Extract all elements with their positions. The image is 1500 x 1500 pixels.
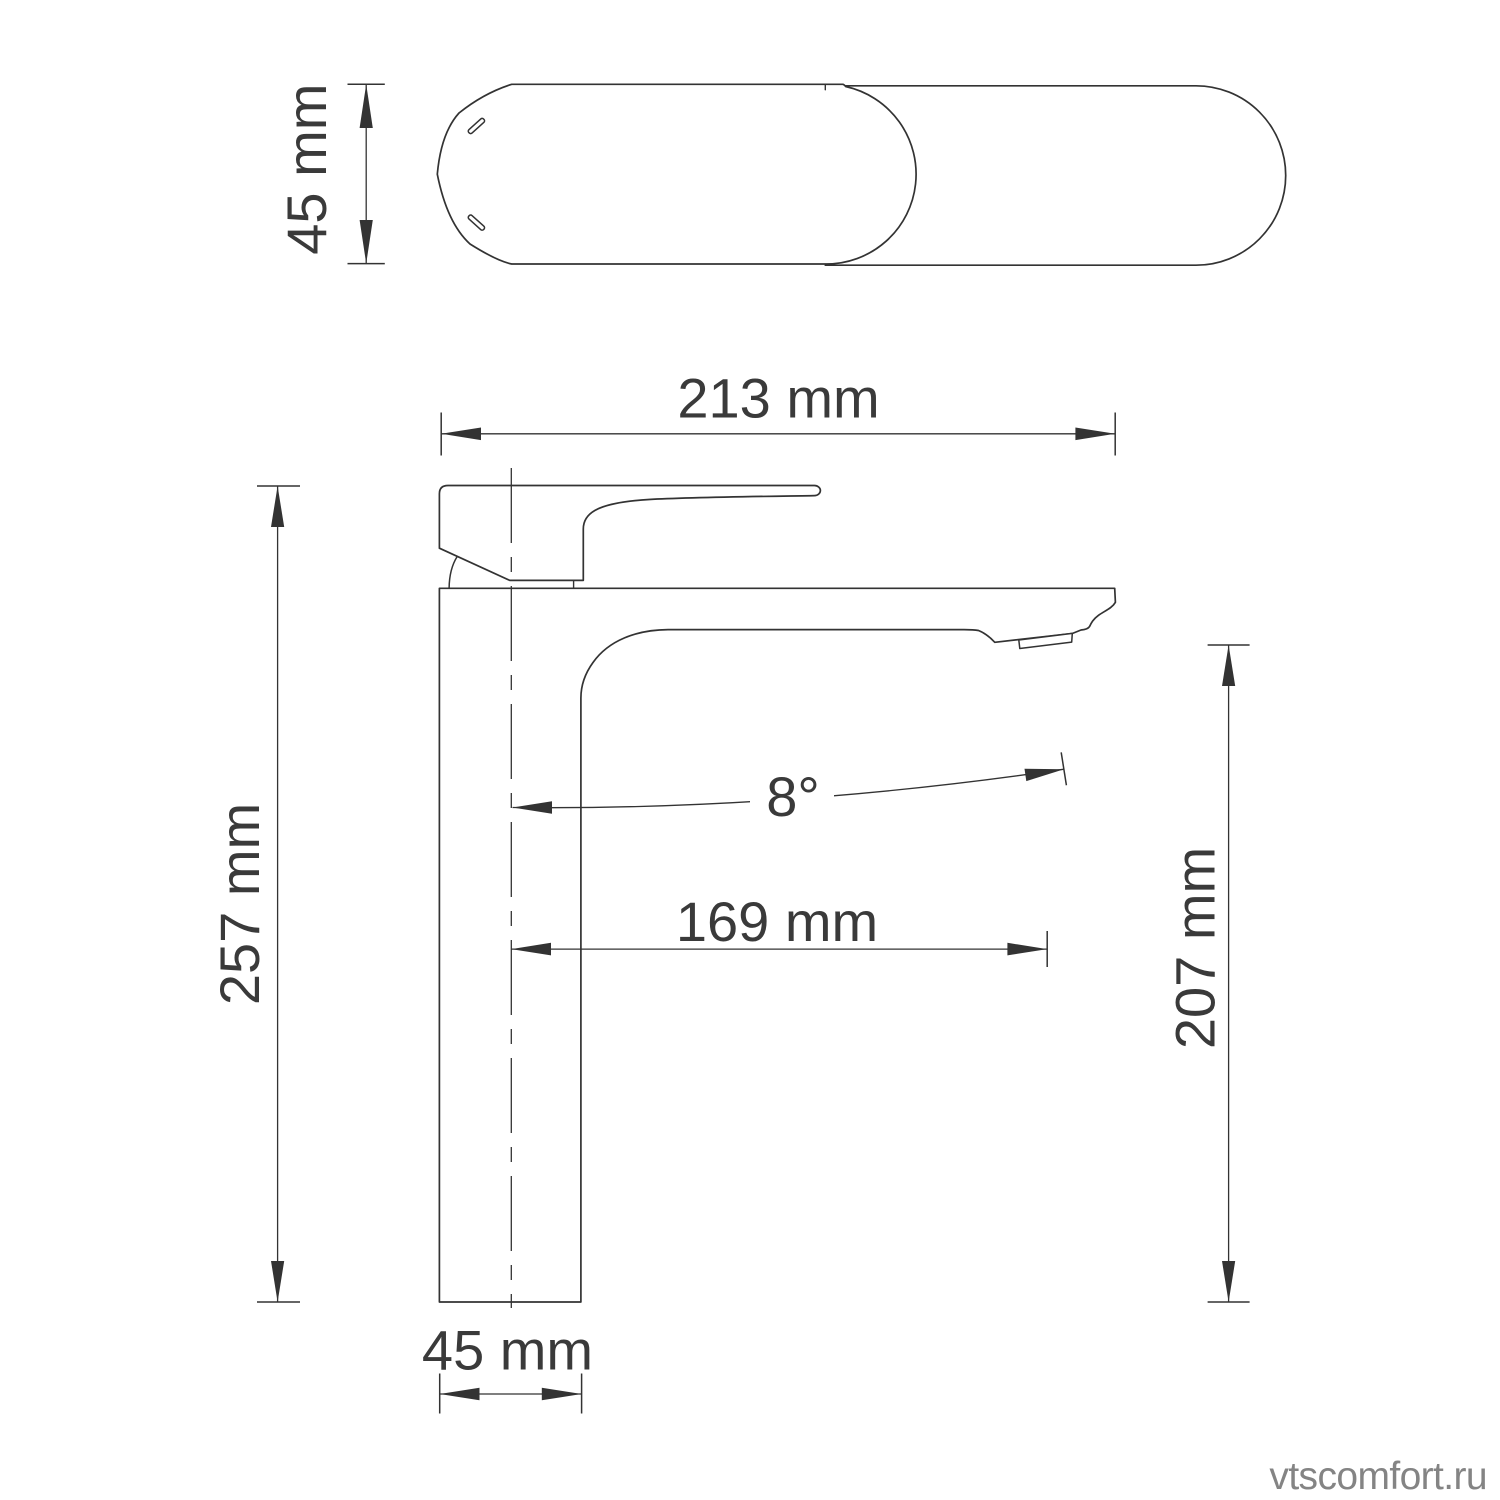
svg-text:257 mm: 257 mm xyxy=(208,803,271,1005)
svg-text:45 mm: 45 mm xyxy=(275,84,338,255)
svg-text:169 mm: 169 mm xyxy=(676,890,878,953)
svg-text:213 mm: 213 mm xyxy=(677,367,879,430)
svg-text:45 mm: 45 mm xyxy=(422,1319,593,1382)
svg-text:vtscomfort.ru: vtscomfort.ru xyxy=(1269,1455,1487,1498)
svg-text:207 mm: 207 mm xyxy=(1164,847,1227,1049)
svg-text:8°: 8° xyxy=(766,765,820,828)
